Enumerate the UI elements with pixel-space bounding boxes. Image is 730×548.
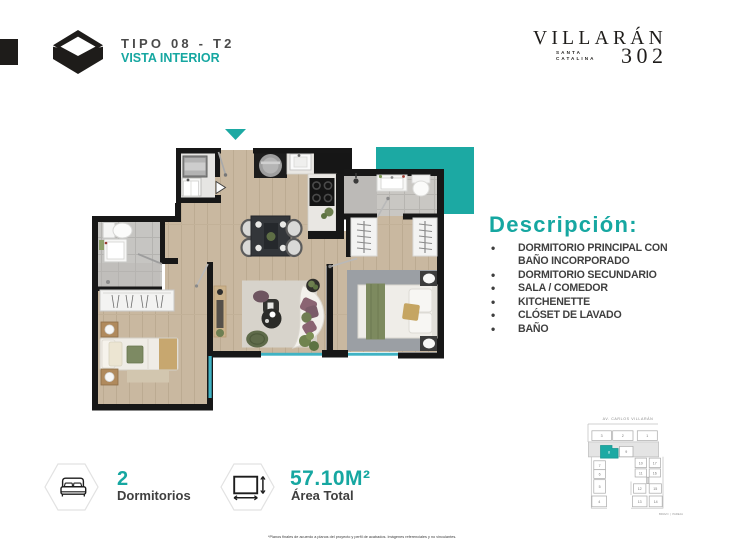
svg-text:7: 7 (599, 464, 601, 468)
svg-text:12: 12 (638, 487, 642, 491)
svg-text:16: 16 (653, 472, 657, 476)
svg-text:6: 6 (599, 473, 601, 477)
svg-text:11: 11 (639, 472, 643, 476)
svg-text:9: 9 (625, 450, 627, 454)
svg-text:8: 8 (608, 451, 610, 455)
svg-text:3: 3 (601, 434, 603, 438)
svg-text:13: 13 (638, 500, 642, 504)
svg-text:AV. CARLOS VILLARÁN: AV. CARLOS VILLARÁN (603, 417, 654, 421)
svg-text:2: 2 (622, 434, 624, 438)
svg-text:4: 4 (598, 500, 600, 504)
svg-text:BRAVO | PAREJA: BRAVO | PAREJA (659, 512, 683, 516)
svg-text:10: 10 (639, 461, 643, 465)
svg-text:1: 1 (646, 434, 648, 438)
svg-text:14: 14 (654, 500, 658, 504)
svg-text:5: 5 (599, 485, 601, 489)
svg-text:15: 15 (653, 487, 657, 491)
svg-text:17: 17 (653, 461, 657, 465)
